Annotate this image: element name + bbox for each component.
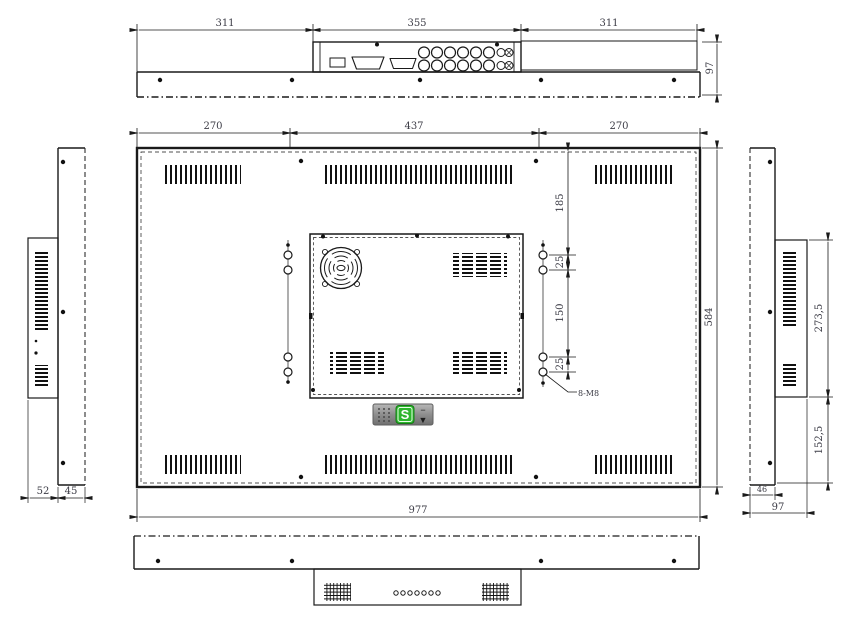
- top-view-chassis-block: [521, 41, 697, 70]
- speaker-grille-right: [482, 583, 509, 601]
- top-dim-left: 311: [215, 18, 234, 29]
- drawing-svg: 311 355 311 97: [0, 0, 844, 622]
- main-rear-view: [137, 128, 723, 522]
- left-view-panel-bar: [58, 148, 85, 485]
- left-dim-back: 45: [65, 486, 78, 497]
- mount-holes-right: [539, 240, 547, 387]
- app-logo-letter: S: [401, 407, 410, 422]
- floating-widget[interactable]: S − ▼: [373, 404, 433, 425]
- screw-dot: [534, 159, 538, 163]
- bottom-view-front-bar: [134, 536, 699, 569]
- screw-dot: [299, 475, 303, 479]
- rear-panel-outline: [137, 148, 700, 487]
- bottom-view: [134, 536, 699, 605]
- main-dim-height: 584: [704, 307, 715, 326]
- vent-grid-bottom-left: [330, 350, 384, 374]
- right-dim-back: 46: [757, 485, 767, 494]
- button-row: [394, 591, 440, 595]
- top-dim-depth: 97: [705, 62, 716, 75]
- technical-drawing-canvas: 311 355 311 97: [0, 0, 844, 622]
- screw-dot: [534, 475, 538, 479]
- screw-dot: [495, 43, 499, 47]
- mount-holes-left: [284, 240, 292, 384]
- minimize-button[interactable]: −: [420, 405, 425, 415]
- screw-dot: [299, 159, 303, 163]
- vent-strips-top: [162, 165, 675, 184]
- rear-panel-inner-seam: [141, 152, 696, 483]
- expand-button[interactable]: ▼: [419, 415, 428, 425]
- vent-grid-top-right: [453, 253, 507, 277]
- right-view-panel-bar: [750, 148, 775, 485]
- right-dim-lower: 152,5: [814, 426, 825, 455]
- cooling-fan: [321, 248, 362, 289]
- top-dim-center: 355: [407, 18, 426, 29]
- main-dim-width: 977: [408, 505, 427, 516]
- top-view-front-bar: [137, 72, 700, 97]
- left-view-vented-bar: [28, 238, 58, 398]
- electronics-enclosure: [309, 234, 524, 399]
- vent-strips-bottom: [162, 455, 675, 474]
- right-view-vented-bar: [775, 240, 807, 397]
- left-side-view: [28, 148, 85, 503]
- dvi-port: [390, 59, 416, 69]
- vent-grid-bottom-right: [453, 350, 507, 374]
- main-dim-hole-gap-bottom: 25: [555, 358, 566, 371]
- hole-callout-leader: [545, 374, 577, 392]
- io-connector-panel: [313, 42, 521, 72]
- top-dim-right: 311: [599, 18, 618, 29]
- bottom-speaker-box: [314, 569, 521, 605]
- main-dim-hole-offset: 185: [555, 193, 566, 212]
- vga-port: [352, 57, 384, 69]
- rca-jacks: [419, 47, 495, 71]
- app-logo-button[interactable]: S: [396, 406, 414, 424]
- screw-dot: [375, 43, 379, 47]
- main-dim-hole-gap-top: 25: [555, 256, 566, 269]
- hole-callout-label: 8-M8: [578, 389, 599, 398]
- speaker-grille-left: [324, 583, 351, 601]
- main-dim-hole-span: 150: [555, 303, 566, 322]
- top-view: [137, 24, 722, 97]
- right-dim-upper: 273,5: [814, 304, 825, 333]
- main-dim-top-right: 270: [609, 121, 628, 132]
- right-dim-depth: 97: [772, 502, 785, 513]
- main-dim-top-left: 270: [203, 121, 222, 132]
- left-dim-front: 52: [37, 486, 50, 497]
- main-dim-top-center: 437: [404, 121, 423, 132]
- power-inlet-port: [330, 58, 345, 67]
- mini-jacks: [497, 49, 513, 70]
